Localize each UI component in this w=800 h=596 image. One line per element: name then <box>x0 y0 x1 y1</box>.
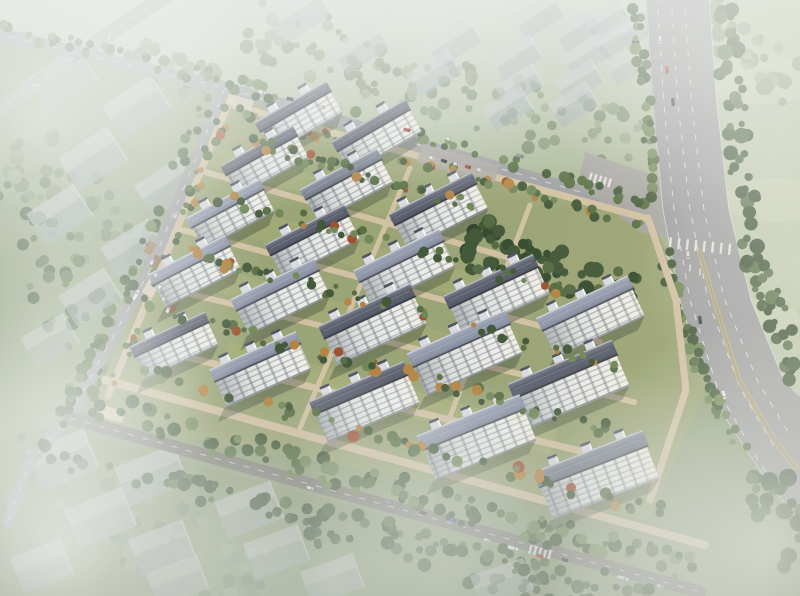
aerial-site-rendering <box>0 0 800 596</box>
scene-canvas <box>0 0 800 596</box>
atmosphere <box>0 0 800 596</box>
